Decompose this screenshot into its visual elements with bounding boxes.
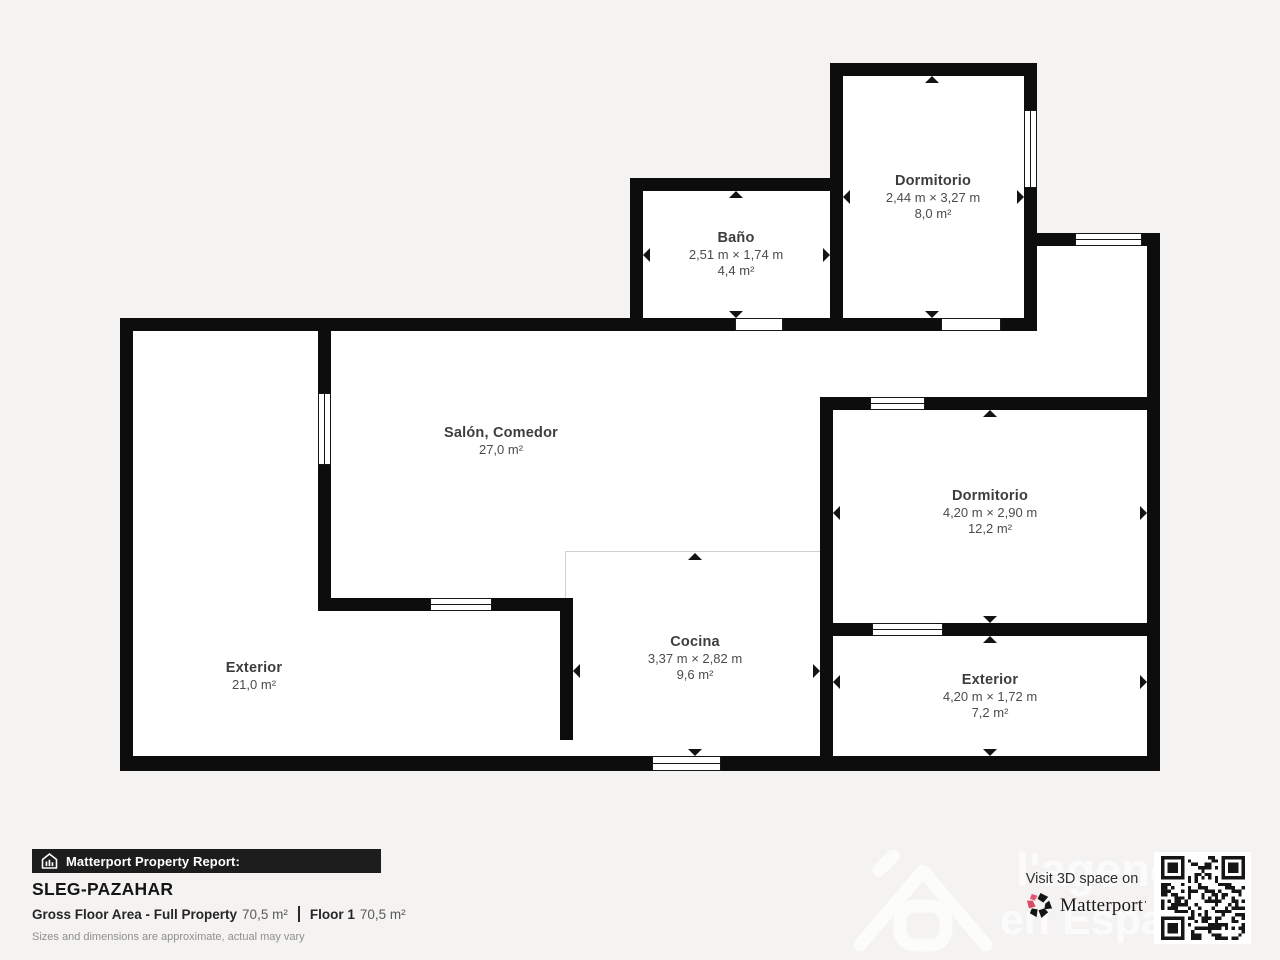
gfa-value: 70,5 m² bbox=[242, 907, 288, 922]
dimension-arrow bbox=[813, 664, 820, 678]
door-opening bbox=[560, 740, 573, 756]
matterport-floorplan-report: Baño 2,51 m × 1,74 m 4,4 m² Dormitorio 2… bbox=[0, 0, 1280, 960]
door-opening bbox=[735, 318, 783, 331]
room-area: 9,6 m² bbox=[648, 667, 742, 683]
room-name: Dormitorio bbox=[943, 488, 1037, 505]
wall bbox=[1147, 233, 1160, 771]
matterport-wordmark: Matterport bbox=[1060, 895, 1143, 917]
room-dimensions: 2,44 m × 3,27 m bbox=[886, 190, 980, 206]
dimension-arrow bbox=[1140, 506, 1147, 520]
floor-label: Floor 1 bbox=[310, 907, 355, 922]
house-bars-icon bbox=[41, 853, 58, 869]
dimension-arrow bbox=[925, 76, 939, 83]
window bbox=[318, 393, 331, 465]
dimension-arrow bbox=[983, 410, 997, 417]
dimension-arrow bbox=[833, 675, 840, 689]
room-dimensions: 3,37 m × 2,82 m bbox=[648, 651, 742, 667]
wall bbox=[830, 63, 843, 331]
property-name: SLEG-PAZAHAR bbox=[32, 879, 173, 900]
window bbox=[430, 598, 492, 611]
agency-watermark-house-icon bbox=[848, 843, 998, 960]
wall bbox=[630, 178, 643, 331]
room-area: 12,2 m² bbox=[943, 521, 1037, 537]
room-floor-exterior-left-b bbox=[318, 611, 560, 756]
dimension-arrow bbox=[688, 553, 702, 560]
dimension-arrow bbox=[729, 191, 743, 198]
room-floor-salon-corridor bbox=[820, 331, 1147, 397]
wall bbox=[120, 756, 1160, 771]
gfa-label: Gross Floor Area - Full Property bbox=[32, 907, 237, 922]
wall bbox=[630, 178, 843, 191]
room-label-salon: Salón, Comedor 27,0 m² bbox=[444, 425, 558, 458]
room-area: 8,0 m² bbox=[886, 206, 980, 222]
window bbox=[872, 623, 943, 636]
dimension-arrow bbox=[833, 506, 840, 520]
room-dimensions: 2,51 m × 1,74 m bbox=[689, 247, 783, 263]
room-floor-exterior-left-a bbox=[133, 331, 318, 756]
wall bbox=[120, 318, 133, 771]
window bbox=[1024, 110, 1037, 188]
room-label-exterior-left: Exterior 21,0 m² bbox=[226, 660, 282, 693]
wall bbox=[820, 397, 833, 756]
room-name: Salón, Comedor bbox=[444, 425, 558, 442]
qr-code[interactable] bbox=[1154, 852, 1251, 944]
window bbox=[870, 397, 925, 410]
room-name: Exterior bbox=[943, 672, 1037, 689]
trademark-mark: ’ bbox=[1144, 900, 1146, 911]
dimension-arrow bbox=[925, 311, 939, 318]
disclaimer-text: Sizes and dimensions are approximate, ac… bbox=[32, 931, 305, 943]
room-name: Baño bbox=[689, 230, 783, 247]
dimension-arrow bbox=[573, 664, 580, 678]
matterport-logo[interactable]: Matterport’ bbox=[1026, 892, 1147, 919]
room-area: 4,4 m² bbox=[689, 263, 783, 279]
door-opening bbox=[941, 318, 1001, 331]
report-bar: Matterport Property Report: bbox=[32, 849, 381, 873]
room-name: Cocina bbox=[648, 634, 742, 651]
wall bbox=[1024, 63, 1037, 331]
room-name: Dormitorio bbox=[886, 173, 980, 190]
visit-3d-label: Visit 3D space on bbox=[1022, 871, 1142, 887]
room-label-dormitorio-2: Dormitorio 4,20 m × 2,90 m 12,2 m² bbox=[943, 488, 1037, 536]
room-dimensions: 4,20 m × 2,90 m bbox=[943, 505, 1037, 521]
dimension-arrow bbox=[688, 749, 702, 756]
wall bbox=[830, 63, 1037, 76]
dimension-arrow bbox=[729, 311, 743, 318]
room-area: 7,2 m² bbox=[943, 705, 1037, 721]
matterport-pinwheel-icon bbox=[1026, 892, 1053, 919]
divider bbox=[298, 906, 300, 922]
dimension-arrow bbox=[643, 248, 650, 262]
dimension-arrow bbox=[843, 190, 850, 204]
room-area: 27,0 m² bbox=[444, 442, 558, 458]
room-area: 21,0 m² bbox=[226, 677, 282, 693]
window bbox=[652, 756, 721, 771]
wall bbox=[820, 623, 1160, 636]
wall bbox=[783, 318, 941, 331]
dimension-arrow bbox=[983, 749, 997, 756]
area-summary: Gross Floor Area - Full Property 70,5 m²… bbox=[32, 906, 416, 922]
dimension-arrow bbox=[1017, 190, 1024, 204]
dimension-arrow bbox=[1140, 675, 1147, 689]
dimension-arrow bbox=[983, 616, 997, 623]
room-label-exterior-right: Exterior 4,20 m × 1,72 m 7,2 m² bbox=[943, 672, 1037, 720]
room-name: Exterior bbox=[226, 660, 282, 677]
dimension-arrow bbox=[983, 636, 997, 643]
wall bbox=[560, 598, 573, 740]
room-dimensions: 4,20 m × 1,72 m bbox=[943, 689, 1037, 705]
report-bar-label: Matterport Property Report: bbox=[66, 854, 240, 869]
floor-value: 70,5 m² bbox=[360, 907, 406, 922]
window bbox=[1075, 233, 1142, 246]
dimension-arrow bbox=[823, 248, 830, 262]
room-label-bano: Baño 2,51 m × 1,74 m 4,4 m² bbox=[689, 230, 783, 278]
room-label-cocina: Cocina 3,37 m × 2,82 m 9,6 m² bbox=[648, 634, 742, 682]
room-label-dormitorio-1: Dormitorio 2,44 m × 3,27 m 8,0 m² bbox=[886, 173, 980, 221]
